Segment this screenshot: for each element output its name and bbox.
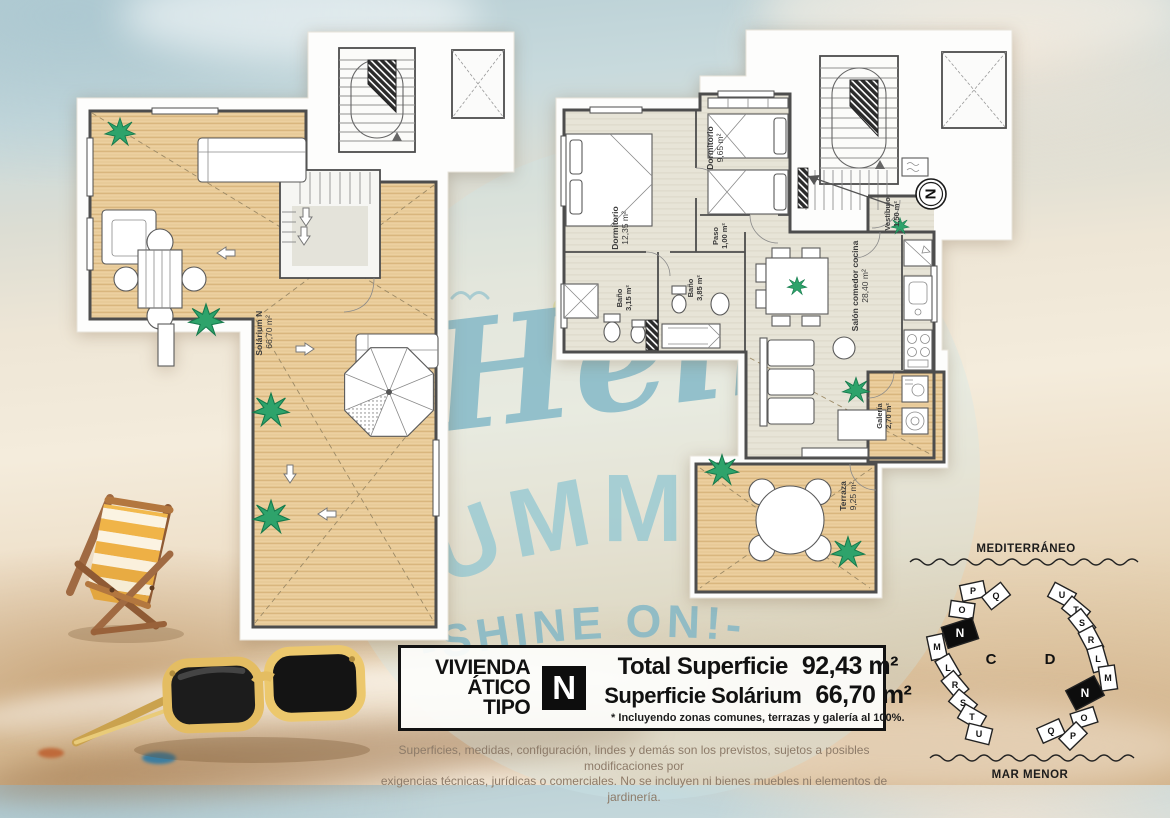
shoreline-bottom	[930, 755, 1134, 761]
solarium-surface-label: Superficie Solárium	[604, 683, 801, 709]
legal-disclaimer: Superficies, medidas, configuración, lin…	[378, 743, 890, 805]
vent-box	[902, 158, 928, 176]
info-box: VIVIENDA ÁTICO TIPO N Total Superficie 9…	[398, 645, 886, 731]
surface-footnote: * Incluyendo zonas comunes, terrazas y g…	[611, 712, 904, 724]
elevator-shaft	[942, 52, 1006, 128]
sea-label-mar-menor: MAR MENOR	[992, 769, 1069, 781]
shaft-hatch	[646, 320, 658, 350]
room-label-galeria: Galería2,70 m²	[875, 402, 893, 428]
room-label-vestibulo: Vestíbulo1,50 m²	[883, 197, 901, 231]
block-c-label: C	[986, 651, 997, 668]
parasol	[345, 348, 434, 437]
sunglasses	[62, 628, 362, 768]
svg-text:R: R	[1088, 635, 1095, 645]
svg-text:N: N	[956, 626, 965, 640]
svg-text:R: R	[952, 680, 959, 690]
total-surface-label: Total Superficie	[618, 653, 788, 681]
svg-text:M: M	[933, 642, 941, 652]
dining-set	[756, 248, 828, 326]
block-d-label: D	[1045, 651, 1056, 668]
svg-text:O: O	[1080, 713, 1087, 723]
svg-text:O: O	[958, 605, 965, 615]
svg-text:Q: Q	[1047, 726, 1054, 736]
svg-text:N: N	[923, 189, 940, 200]
bench	[158, 324, 174, 366]
solarium-label: Solárium N 66,70 m²	[254, 308, 274, 355]
shoreline-top	[910, 559, 1138, 565]
sun-lounger	[198, 138, 306, 182]
beach-chair	[48, 492, 198, 644]
terraza-table-set	[749, 479, 831, 561]
north-compass: N	[916, 179, 946, 209]
sea-label-mediterraneo: MEDITERRÁNEO	[976, 542, 1075, 555]
solarium-surface-value: 66,70 m²	[815, 681, 911, 710]
svg-text:L: L	[945, 663, 951, 673]
double-bed	[566, 134, 652, 226]
kitchen	[902, 235, 932, 370]
total-surface-value: 92,43 m²	[802, 652, 898, 681]
svg-text:U: U	[976, 729, 983, 739]
svg-text:P: P	[1070, 731, 1076, 741]
svg-text:U: U	[1059, 590, 1066, 600]
room-label-dormitorio1: Dormitorio12,35 m²	[610, 206, 630, 249]
svg-text:Q: Q	[992, 591, 999, 601]
highlighted-unit: N	[1066, 676, 1105, 710]
svg-text:L: L	[1095, 654, 1101, 664]
svg-text:P: P	[970, 586, 976, 596]
svg-text:T: T	[969, 712, 975, 722]
site-block-c: P Q O N M L R S T U C	[927, 581, 1011, 745]
site-block-d: U T S R L M N O Q P D	[1037, 582, 1118, 750]
floor-plan-apartment: N Dormitorio12,35 m² Dormitorio9,65 m² P…	[550, 18, 1015, 603]
svg-text:M: M	[1104, 673, 1112, 683]
dwelling-type-title: VIVIENDA ÁTICO TIPO	[435, 658, 530, 718]
svg-text:N: N	[1081, 686, 1090, 700]
highlighted-unit: N	[941, 618, 978, 649]
bathtub	[662, 324, 720, 348]
shower	[564, 284, 598, 318]
svg-text:S: S	[1079, 618, 1085, 628]
type-letter-badge: N	[542, 666, 586, 710]
site-plan: MEDITERRÁNEO P Q O N M L R S T U C U T S…	[902, 528, 1170, 786]
room-label-terraza: Terraza9,25 m²	[838, 481, 858, 511]
